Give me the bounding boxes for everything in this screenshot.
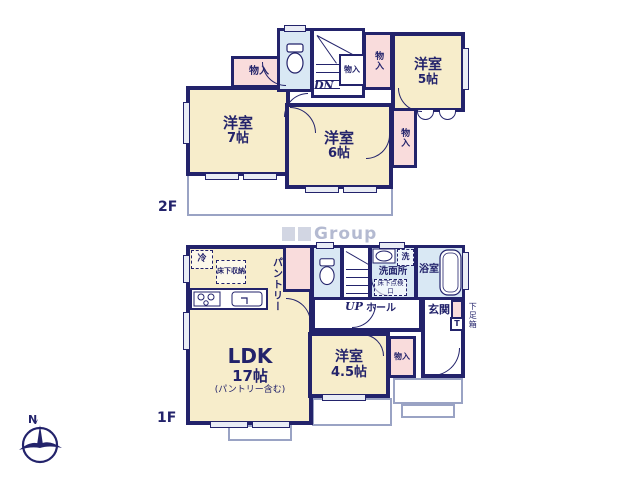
window [284, 25, 306, 32]
entrance-step [401, 404, 455, 418]
ldk-label-block: LDK 17帖 (パントリー含む) [190, 345, 310, 396]
room-size: 7帖 [227, 132, 249, 147]
floor-storage-label: 床下収納 [217, 268, 245, 276]
watermark-mark [282, 227, 295, 241]
window [322, 394, 366, 401]
kitchen-stove-icon [194, 292, 220, 306]
closet-2f-in-stairs: 物入 [339, 54, 365, 86]
closet-2f-right-of-room6: 物入 [391, 108, 417, 168]
watermark-mark [298, 227, 311, 241]
room-2f-7jo: 洋室 7帖 [186, 86, 290, 176]
toilet-icon [284, 42, 306, 78]
pantry-shelf [283, 245, 313, 292]
stairs-1f [341, 245, 371, 300]
laundry-label: 洗 [402, 253, 410, 262]
inspection-hatch-label: 床下点検口 [375, 280, 406, 294]
bathtub-icon [439, 249, 462, 296]
casement-window [439, 110, 456, 120]
washroom-label: 洗面所 [371, 267, 415, 278]
stairs-up-label: UP [345, 300, 363, 313]
fridge-box: 冷 [191, 250, 213, 269]
shoe-cabinet-t-label: T [454, 319, 459, 328]
stair-treads [346, 262, 368, 297]
porch-outline [312, 398, 392, 426]
window [210, 421, 248, 428]
floor-label-1f: 1F [157, 410, 176, 426]
window [183, 312, 190, 350]
room-size: 6帖 [328, 147, 350, 162]
window [462, 252, 469, 290]
shoe-box-label: 下足箱 [468, 296, 477, 334]
pantry-label: パントリー [270, 248, 282, 320]
bathroom-label: 浴室 [419, 264, 439, 276]
closet-1f: 物入 [388, 336, 416, 378]
window [183, 102, 190, 144]
room-size: 5帖 [418, 73, 438, 87]
toilet-room-1f [311, 245, 343, 300]
window [462, 48, 469, 90]
stairs-down-label: DN [314, 79, 334, 92]
closet-label: 物入 [394, 352, 410, 361]
window [243, 173, 277, 180]
window [252, 421, 290, 428]
window [183, 255, 190, 283]
room-name: 洋室 [223, 115, 253, 132]
laundry-box: 洗 [397, 249, 414, 266]
closet-label: 物入 [373, 51, 383, 71]
room-name: 洋室 [335, 349, 363, 365]
room-note: (パントリー含む) [190, 385, 310, 395]
floor-storage-box: 床下収納 [216, 260, 246, 284]
toilet-icon [317, 257, 337, 289]
window [316, 242, 334, 249]
floor-plan-canvas: 2F 洋室 7帖 洋室 6帖 洋室 5帖 物入 物入 物入 [0, 0, 640, 480]
watermark: Group [282, 224, 377, 244]
kitchen-icons [192, 290, 266, 308]
room-size: 17帖 [190, 368, 310, 385]
room-name: 洋室 [414, 57, 442, 73]
shoe-cabinet-t-box: T [450, 317, 464, 331]
entrance-porch [393, 378, 463, 404]
window [343, 186, 377, 193]
washbasin-icon [372, 248, 396, 264]
closet-label: 物入 [399, 128, 409, 148]
compass-n-label: N [28, 413, 37, 426]
window [205, 173, 239, 180]
inspection-hatch-box: 床下点検口 [374, 279, 407, 296]
watermark-text: Group [314, 224, 377, 244]
entrance-label: 玄関 [428, 304, 450, 317]
room-size: 4.5帖 [331, 366, 367, 381]
fridge-label: 冷 [197, 255, 206, 265]
closet-2f-right-of-stairs: 物入 [363, 32, 393, 90]
kitchen-counter [190, 288, 268, 310]
hall-label: ホール [366, 303, 396, 315]
room-name: 洋室 [324, 130, 354, 147]
compass-icon: N [12, 412, 66, 470]
closet-label: 物入 [344, 65, 360, 74]
window [305, 186, 339, 193]
room-name: LDK [190, 345, 310, 368]
floor-label-2f: 2F [158, 199, 177, 215]
